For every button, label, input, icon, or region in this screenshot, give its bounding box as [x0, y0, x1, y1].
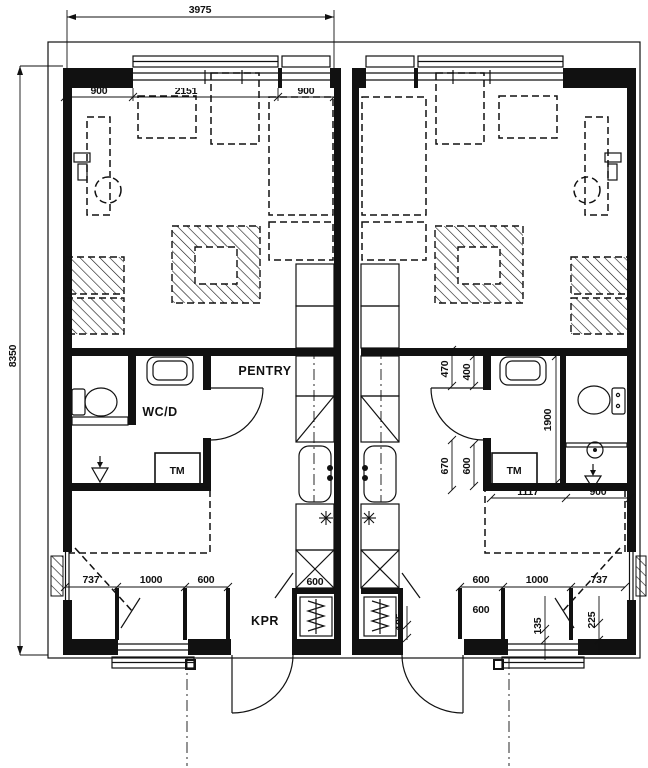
- room-label-kpr: KPR: [251, 614, 279, 628]
- dim-8350: 8350: [7, 344, 19, 367]
- doors: [211, 388, 483, 713]
- dim-600-closet-l: 600: [307, 576, 324, 588]
- bed-right: [362, 97, 426, 215]
- site-marks: [186, 658, 509, 766]
- wardrobe-left-a: [138, 96, 196, 138]
- dim-400: 400: [461, 363, 473, 380]
- dim-600-bath: 600: [461, 457, 473, 474]
- dim-185: 185: [394, 613, 406, 630]
- dim-225: 225: [586, 611, 598, 628]
- toilet-bowl-left: [85, 388, 117, 416]
- desk-left: [87, 117, 110, 215]
- dim-3975: 3975: [189, 4, 212, 16]
- dim-1000-l: 1000: [140, 574, 163, 586]
- dim-670: 670: [439, 457, 451, 474]
- dim-1000-r: 1000: [526, 574, 549, 586]
- seating-left-b: [66, 298, 124, 334]
- seating-right-b: [571, 298, 629, 334]
- floor-drain-left: [92, 468, 108, 482]
- bed-left: [269, 97, 333, 215]
- dim-135: 135: [532, 617, 544, 634]
- floor-plan-page: 3975 8350 900 2151 900: [0, 0, 648, 768]
- walls-exterior: [63, 68, 636, 655]
- dim-600-r: 600: [473, 574, 490, 586]
- dim-737-l: 737: [83, 574, 100, 586]
- stove-right: [361, 504, 399, 550]
- appliance-label-tm-right: TM: [507, 465, 522, 477]
- room-label-wc: WC/D: [142, 405, 177, 419]
- dim-737-r: 737: [591, 574, 608, 586]
- stove-left: [296, 504, 334, 550]
- walls-interior: [72, 348, 627, 640]
- dim-600-l: 600: [198, 574, 215, 586]
- appliance-label-tm-left: TM: [170, 465, 185, 477]
- dim-overall-top: 3975: [67, 4, 334, 68]
- dim-1900: 1900: [542, 408, 554, 431]
- door-swing-left-bath: [211, 388, 263, 440]
- dim-1117: 1117: [517, 486, 539, 498]
- seating-left-a: [66, 257, 124, 294]
- door-swing-right-entry: [402, 655, 463, 713]
- desk-right: [585, 117, 608, 215]
- party-wall-right: [352, 68, 359, 655]
- toilet-tank-left: [72, 389, 85, 415]
- bathroom-right: TM: [492, 357, 625, 489]
- dim-900-bath: 900: [590, 486, 607, 498]
- room-label-pentry: PENTRY: [238, 364, 291, 378]
- kitchen-right: [361, 264, 399, 636]
- door-swing-left-entry: [232, 655, 293, 713]
- toilet-bowl-right: [578, 386, 610, 414]
- dim-600-closet-r: 600: [473, 604, 490, 616]
- hall-wardrobe-left: [70, 487, 210, 553]
- floor-plan-drawing: 3975 8350 900 2151 900: [0, 0, 648, 768]
- kitchen-sink-right: [364, 446, 396, 502]
- door-swing-right-bath: [431, 388, 483, 440]
- seating-right-a: [571, 257, 629, 294]
- toilet-tank-right: [612, 388, 625, 414]
- wardrobe-right-a: [499, 96, 557, 138]
- dim-470: 470: [439, 360, 451, 377]
- kitchen-sink-left: [299, 446, 331, 502]
- party-wall-left: [334, 68, 341, 655]
